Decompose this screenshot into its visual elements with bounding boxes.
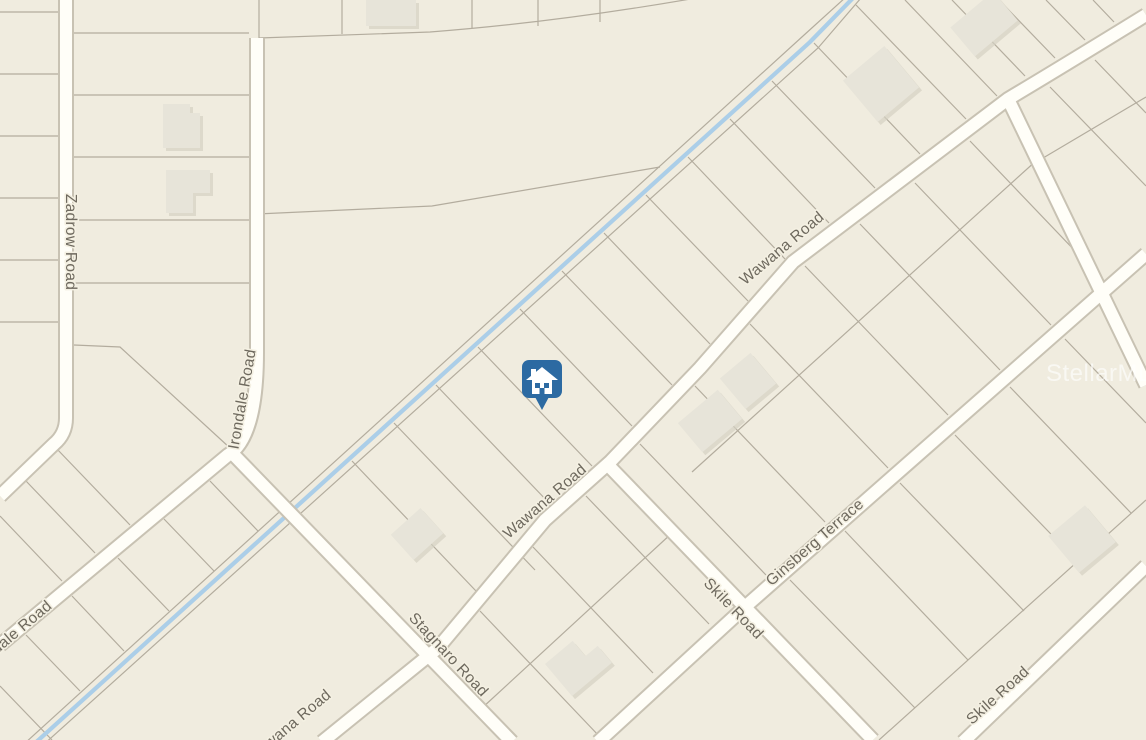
building (366, 0, 416, 26)
building (678, 390, 742, 453)
building (166, 170, 210, 213)
building (720, 353, 776, 409)
road-irondale (0, 38, 257, 645)
building (163, 104, 200, 148)
road-skile-southeast (963, 566, 1146, 740)
building (843, 46, 919, 122)
stellar-mls-watermark: StellarMLS (1046, 360, 1146, 388)
building (391, 508, 443, 560)
road-label-ginsberg: Ginsberg Terrace (763, 496, 867, 590)
road-unnamed (1008, 99, 1146, 385)
road-label-zadrow: Zadrow Road (62, 194, 79, 290)
building (1048, 505, 1116, 573)
map-canvas[interactable]: Zadrow Road Irondale Road Irondale Road … (0, 0, 1146, 740)
road-label-wawana-southwest: Wawana Road (244, 686, 335, 740)
road-labels: Zadrow Road Irondale Road Irondale Road … (0, 194, 1033, 740)
building-shadows (166, 0, 1119, 699)
road-ginsberg (598, 254, 1146, 740)
property-marker[interactable] (522, 360, 562, 410)
map-layers: Zadrow Road Irondale Road Irondale Road … (0, 0, 1146, 740)
buildings (163, 0, 1119, 699)
building-footprints (163, 0, 1116, 696)
